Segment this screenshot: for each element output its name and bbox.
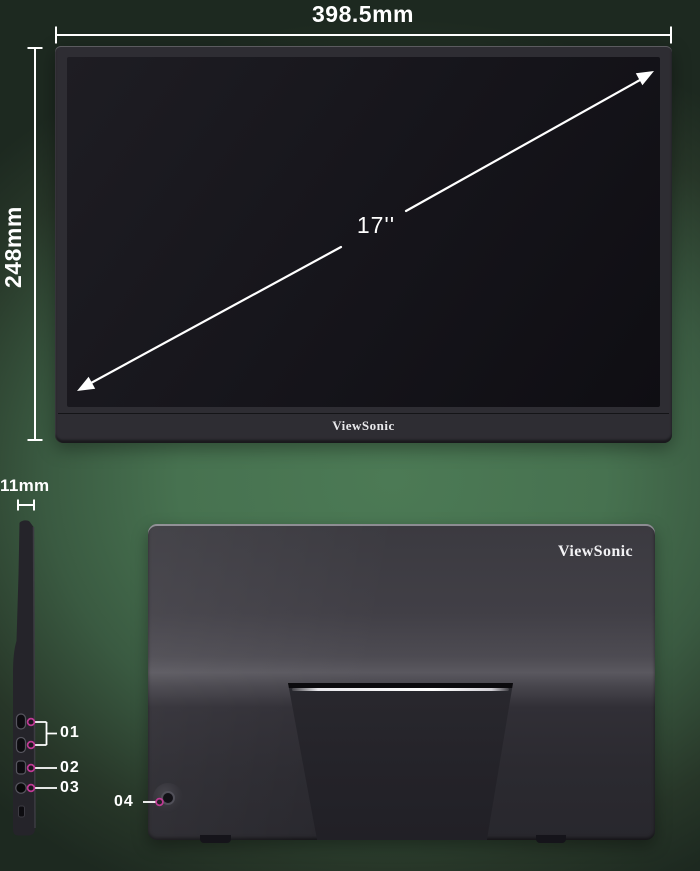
kickstand	[288, 683, 513, 840]
audio-jack-icon	[16, 783, 26, 793]
front-view-monitor: ViewSonic	[55, 46, 672, 443]
callout-01-bracket-line	[35, 722, 58, 745]
usb-c-port-2-icon	[17, 738, 26, 753]
width-dimension-line	[56, 27, 671, 44]
back-foot-left-icon	[200, 835, 231, 843]
width-label: 398.5mm	[263, 3, 463, 26]
callout-dot-usb2-icon	[28, 742, 35, 749]
callout-dot-hdmi-icon	[28, 765, 35, 772]
side-view-profile	[13, 520, 35, 835]
power-button-inner	[161, 791, 175, 805]
front-chin-seam	[58, 413, 669, 414]
callout-label-03: 03	[60, 780, 80, 796]
height-label: 248mm	[0, 172, 27, 322]
mini-hdmi-port-icon	[17, 761, 26, 774]
back-view-monitor: ViewSonic	[148, 524, 655, 840]
callout-label-02: 02	[60, 760, 80, 776]
usb-c-port-1-icon	[17, 714, 26, 729]
callout-dot-audio-icon	[28, 785, 35, 792]
back-foot-right-icon	[536, 835, 566, 843]
side-view-front-edge	[34, 527, 36, 828]
diagonal-label: 17''	[348, 214, 404, 237]
callout-label-04: 04	[114, 794, 134, 810]
kensington-slot-icon	[19, 806, 25, 817]
viewsonic-logo-back: ViewSonic	[558, 543, 633, 561]
height-dimension-line	[28, 48, 43, 440]
thickness-dimension-line	[18, 500, 34, 511]
callout-label-01: 01	[60, 725, 80, 741]
viewsonic-logo-front: ViewSonic	[55, 418, 672, 434]
thickness-label: 11mm	[0, 477, 48, 494]
product-dimension-diagram: ViewSonic ViewSonic	[0, 0, 700, 871]
kickstand-highlight	[292, 688, 509, 691]
power-button-icon	[153, 783, 183, 813]
callout-dot-usb1-icon	[28, 719, 35, 726]
